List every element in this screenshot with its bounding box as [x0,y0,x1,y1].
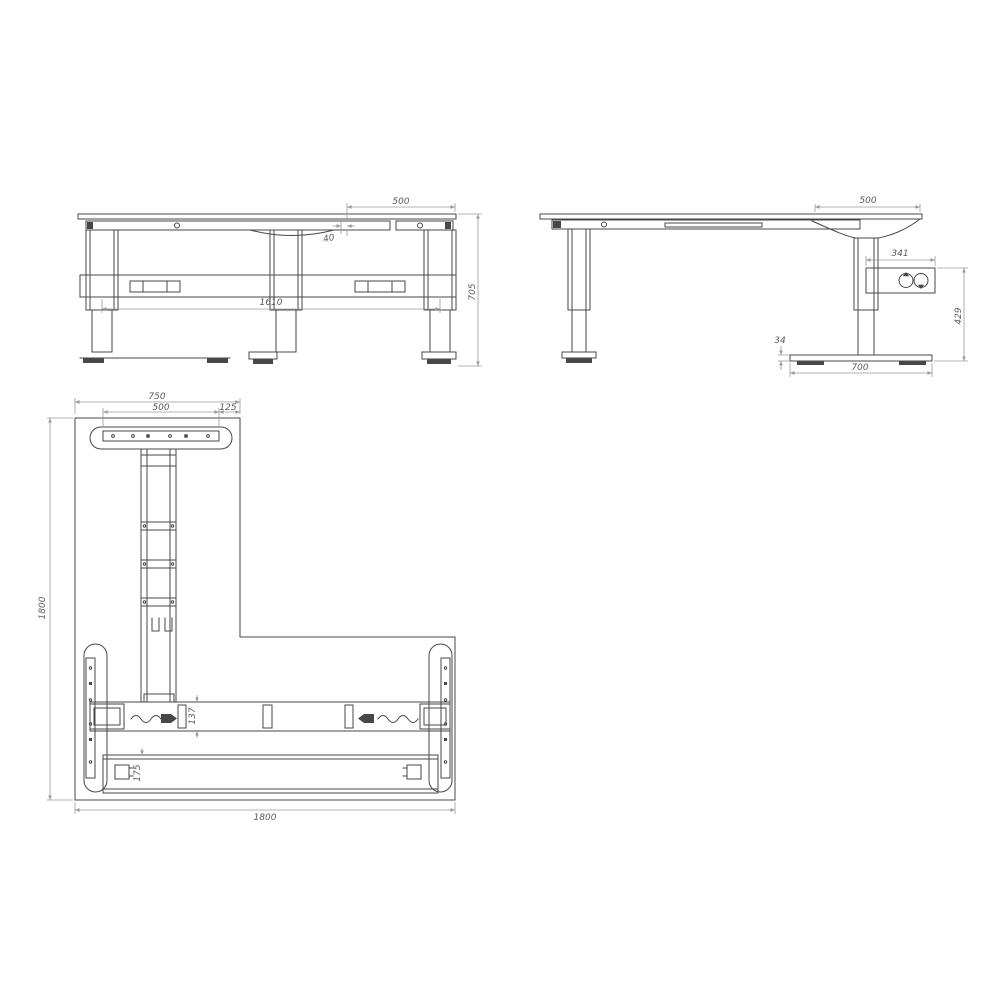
front-left-leg [86,230,118,352]
side-top-support-bracket [812,219,920,238]
side-left-foot [562,352,596,358]
plan-dim-label-1800-left: 1800 [38,596,48,619]
side-left-leg [568,229,590,352]
front-center-foot [249,352,277,359]
side-dim-label-341: 341 [891,249,908,259]
front-dim-label-40: 40 [322,233,336,245]
side-right-foot [790,355,932,361]
plan-top-foot [90,427,232,449]
plan-beam-brackets [115,765,421,779]
front-tabletop [78,214,456,219]
plan-extension-lines [47,398,455,814]
plan-connector-left-icon [161,714,177,723]
front-view: 500 40 1610 705 [78,197,482,366]
side-view: 500 341 429 34 700 [540,196,968,377]
height-adjust-icon [899,272,928,289]
side-dim-label-500: 500 [859,196,876,206]
front-rail-hole-right [418,223,423,228]
front-crossbar-slots [130,281,405,292]
side-right-leg [854,238,878,355]
plan-dim-label-137: 137 [188,707,198,724]
plan-cable-right [378,716,418,723]
front-extension-lines [102,203,482,366]
plan-rear-beam [103,755,438,793]
side-rail-fastener [553,221,561,228]
plan-dim-label-750: 750 [148,392,165,402]
side-extension-lines [778,204,968,377]
front-right-foot-pad [427,359,451,364]
side-left-foot-pad [566,358,592,363]
plan-dim-label-175: 175 [133,764,143,781]
plan-dim-label-1800-bottom: 1800 [254,813,277,823]
side-dim-label-700: 700 [851,363,868,373]
front-dim-label-500: 500 [392,197,409,207]
front-center-foot-pad [253,359,273,364]
side-dim-label-34: 34 [774,336,786,346]
side-rail-slot [665,223,762,227]
plan-top-foot-holes [112,434,210,437]
front-mounting-rail [86,221,453,230]
plan-cable-left [131,716,161,723]
front-crossbar [80,275,456,297]
plan-crossbar-slots [178,705,353,728]
front-dim-label-705: 705 [468,283,478,300]
l-desk-drawing: 500 40 1610 705 500 3 [0,0,1000,1000]
plan-desktop-outline [75,418,455,800]
plan-crossbar [90,702,450,731]
side-dim-label-429: 429 [954,307,964,324]
front-long-foot-pads [83,358,228,363]
plan-column-rungs [141,522,176,631]
technical-drawing-canvas: 500 40 1610 705 500 3 [0,0,1000,1000]
plan-top-foot-plate [103,431,219,441]
plan-dim-label-125: 125 [219,403,236,413]
front-rail-hole-left [175,223,180,228]
plan-dim-label-500: 500 [152,403,169,413]
front-right-leg [424,230,456,352]
plan-connector-right-icon [358,714,374,723]
front-right-foot [422,352,456,359]
side-control-box [866,268,935,293]
plan-view: 750 500 125 1800 1800 137 175 [38,392,455,823]
side-rail-hole [602,222,607,227]
front-center-leg [270,230,302,352]
plan-leg-column [141,449,176,702]
side-tabletop [540,214,922,219]
front-dim-label-1610: 1610 [260,298,283,308]
